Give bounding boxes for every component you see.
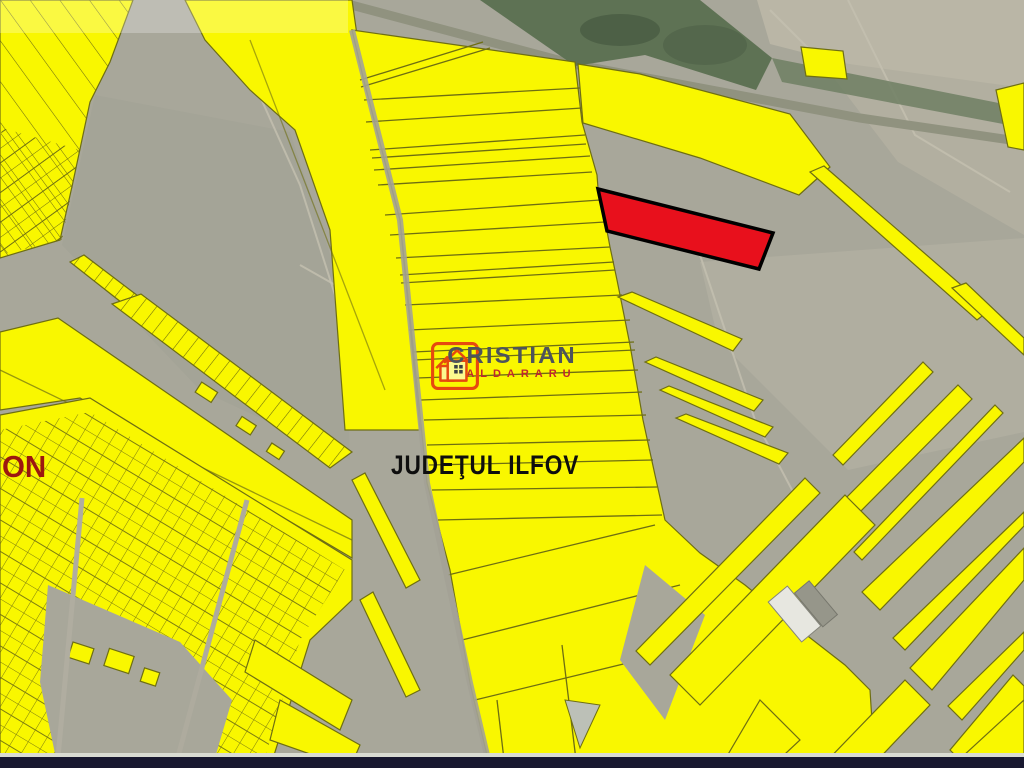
pale-band	[0, 0, 348, 33]
region-label: JUDEŢUL ILFOV	[391, 450, 579, 481]
map-image[interactable]: CRISTIAN CALDARARU JUDEŢUL ILFOV ON	[0, 0, 1024, 768]
bottom-border-dark	[0, 757, 1024, 768]
trees	[580, 14, 660, 46]
map-canvas	[0, 0, 1024, 768]
trees	[663, 25, 747, 65]
parcel-small-topright	[801, 47, 847, 79]
brand-name: CRISTIAN	[427, 344, 598, 367]
bottom-border-light	[0, 753, 1024, 757]
watermark-logo: CRISTIAN CALDARARU	[430, 341, 594, 380]
cutoff-locality-label: ON	[2, 449, 46, 485]
